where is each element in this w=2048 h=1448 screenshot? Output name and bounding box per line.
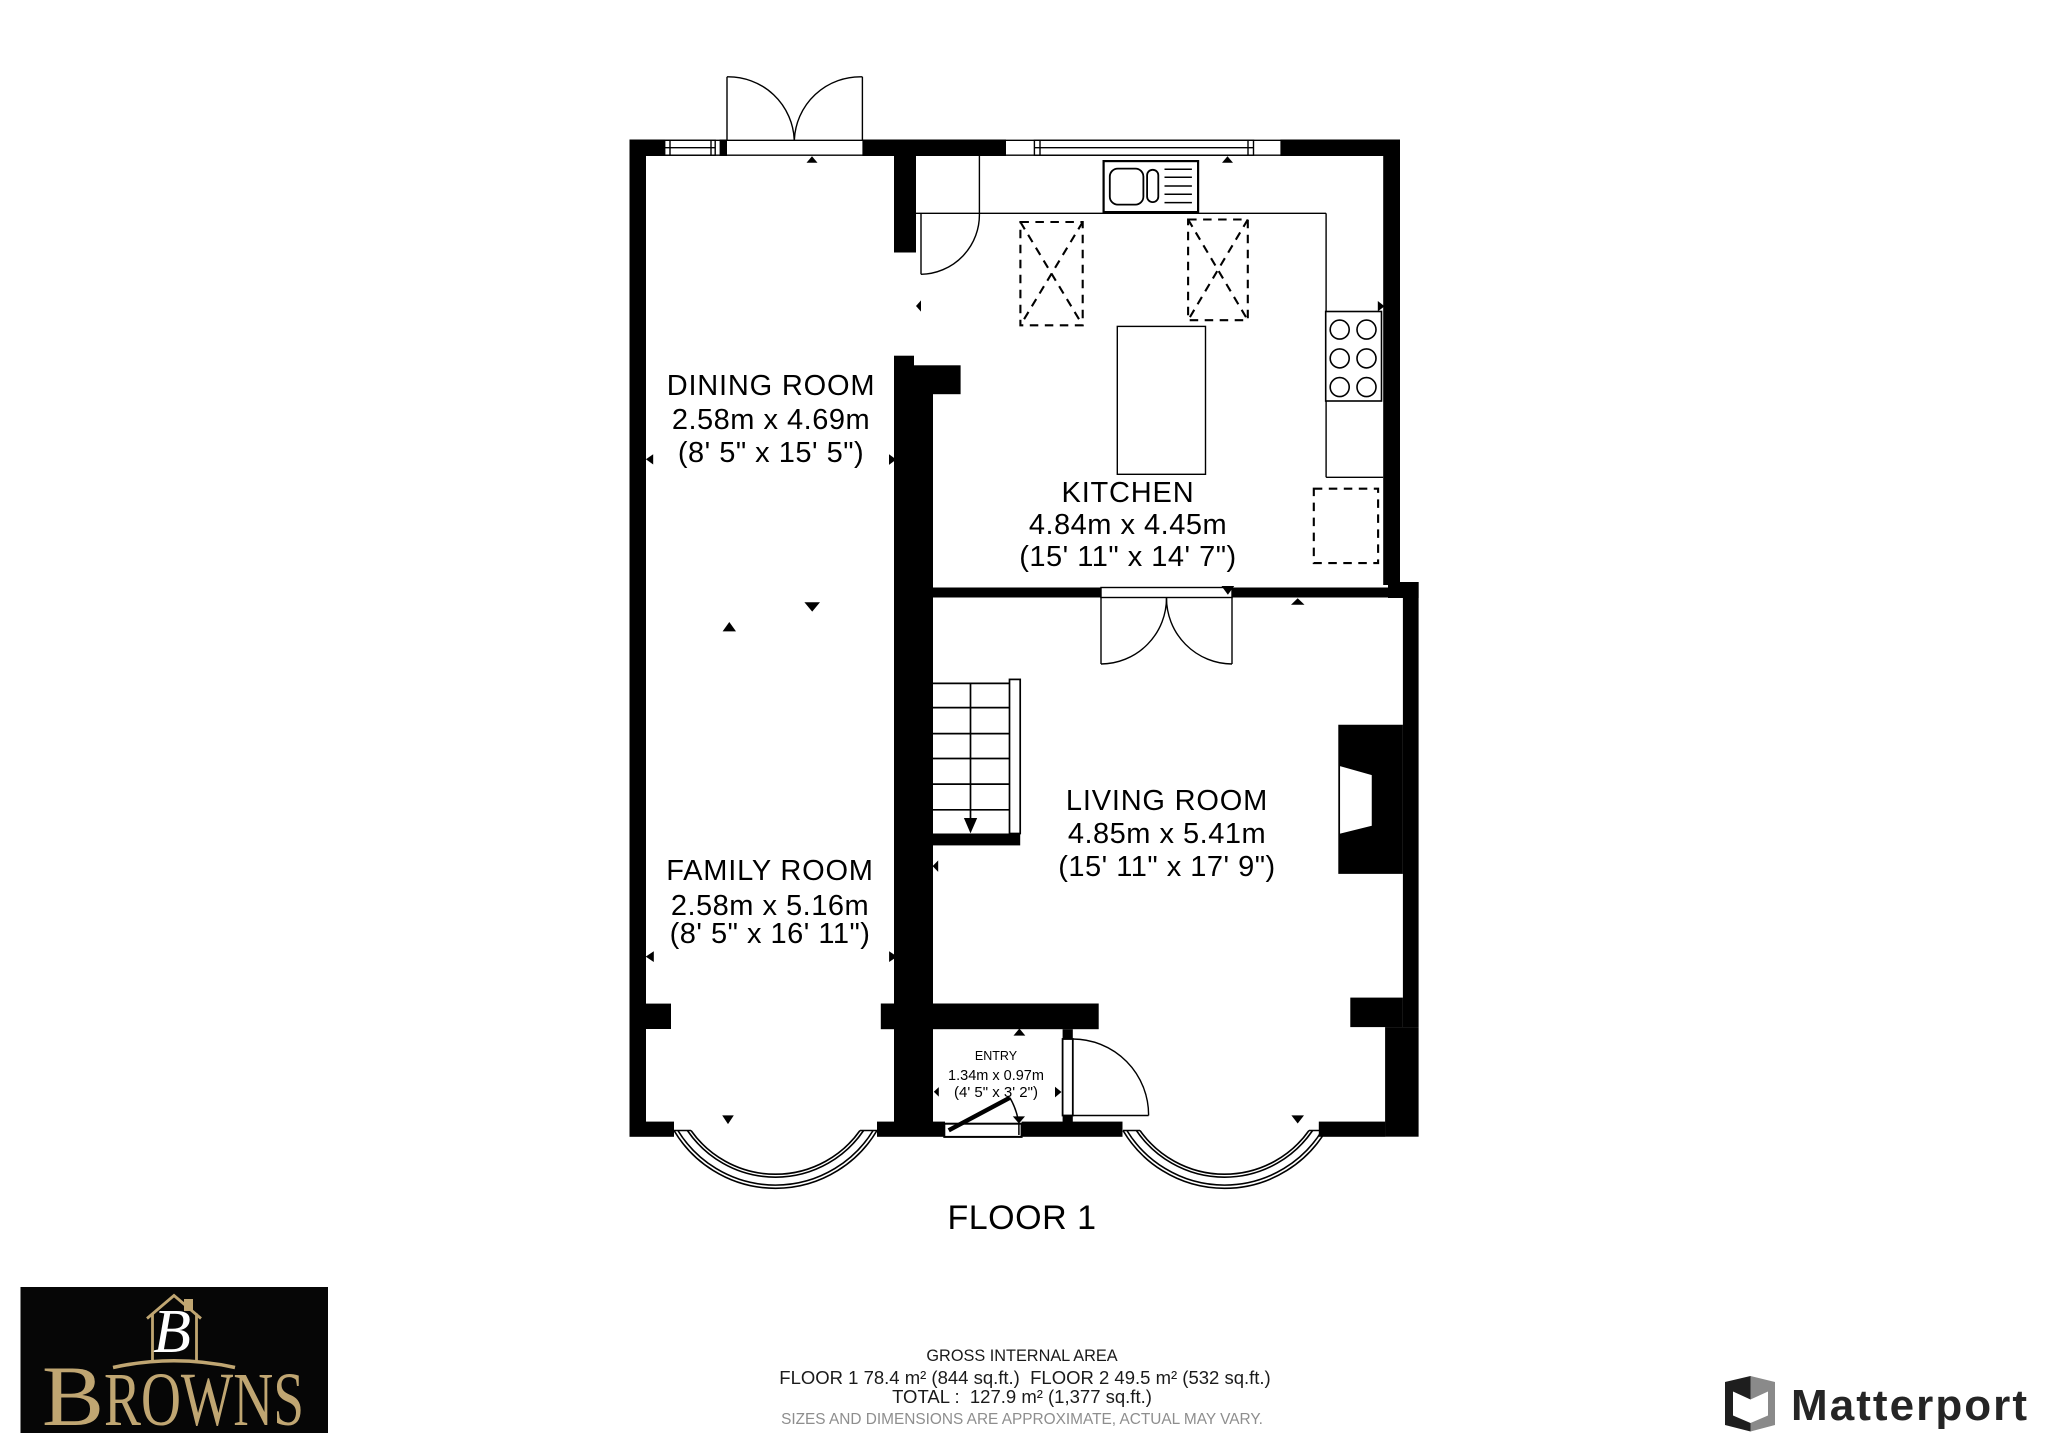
svg-text:FLOOR 1: FLOOR 1 (948, 1199, 1097, 1237)
svg-text:(8' 5" x 16' 11"): (8' 5" x 16' 11") (670, 918, 871, 950)
svg-text:DINING ROOM: DINING ROOM (667, 370, 876, 402)
svg-text:SIZES AND DIMENSIONS ARE APPRO: SIZES AND DIMENSIONS ARE APPROXIMATE, AC… (781, 1411, 1263, 1428)
svg-text:FAMILY ROOM: FAMILY ROOM (666, 855, 874, 887)
svg-text:4.85m x 5.41m: 4.85m x 5.41m (1068, 818, 1266, 850)
svg-text:GROSS INTERNAL AREA: GROSS INTERNAL AREA (926, 1347, 1117, 1365)
svg-text:FLOOR 1 78.4 m² (844 sq.ft.): FLOOR 1 78.4 m² (844 sq.ft.) FLOOR 2 49.… (779, 1367, 1270, 1388)
svg-text:(15' 11" x 17' 9"): (15' 11" x 17' 9") (1058, 851, 1275, 883)
svg-text:TOTAL : 127.9 m² (1,377 sq.ft: TOTAL : 127.9 m² (1,377 sq.ft.) (892, 1386, 1152, 1407)
svg-text:ENTRY: ENTRY (975, 1049, 1018, 1063)
svg-text:ROWNS: ROWNS (104, 1358, 304, 1442)
svg-text:(8' 5" x 15' 5"): (8' 5" x 15' 5") (678, 437, 864, 469)
svg-text:KITCHEN: KITCHEN (1062, 477, 1195, 509)
svg-text:B: B (42, 1348, 104, 1444)
svg-text:LIVING ROOM: LIVING ROOM (1066, 785, 1268, 817)
svg-text:B: B (153, 1298, 191, 1366)
svg-text:(4' 5" x 3' 2"): (4' 5" x 3' 2") (954, 1084, 1038, 1101)
svg-text:2.58m x 4.69m: 2.58m x 4.69m (672, 404, 870, 436)
svg-text:1.34m x 0.97m: 1.34m x 0.97m (948, 1068, 1044, 1084)
svg-text:(15' 11" x 14' 7"): (15' 11" x 14' 7") (1019, 541, 1236, 573)
svg-text:4.84m x 4.45m: 4.84m x 4.45m (1029, 509, 1227, 541)
